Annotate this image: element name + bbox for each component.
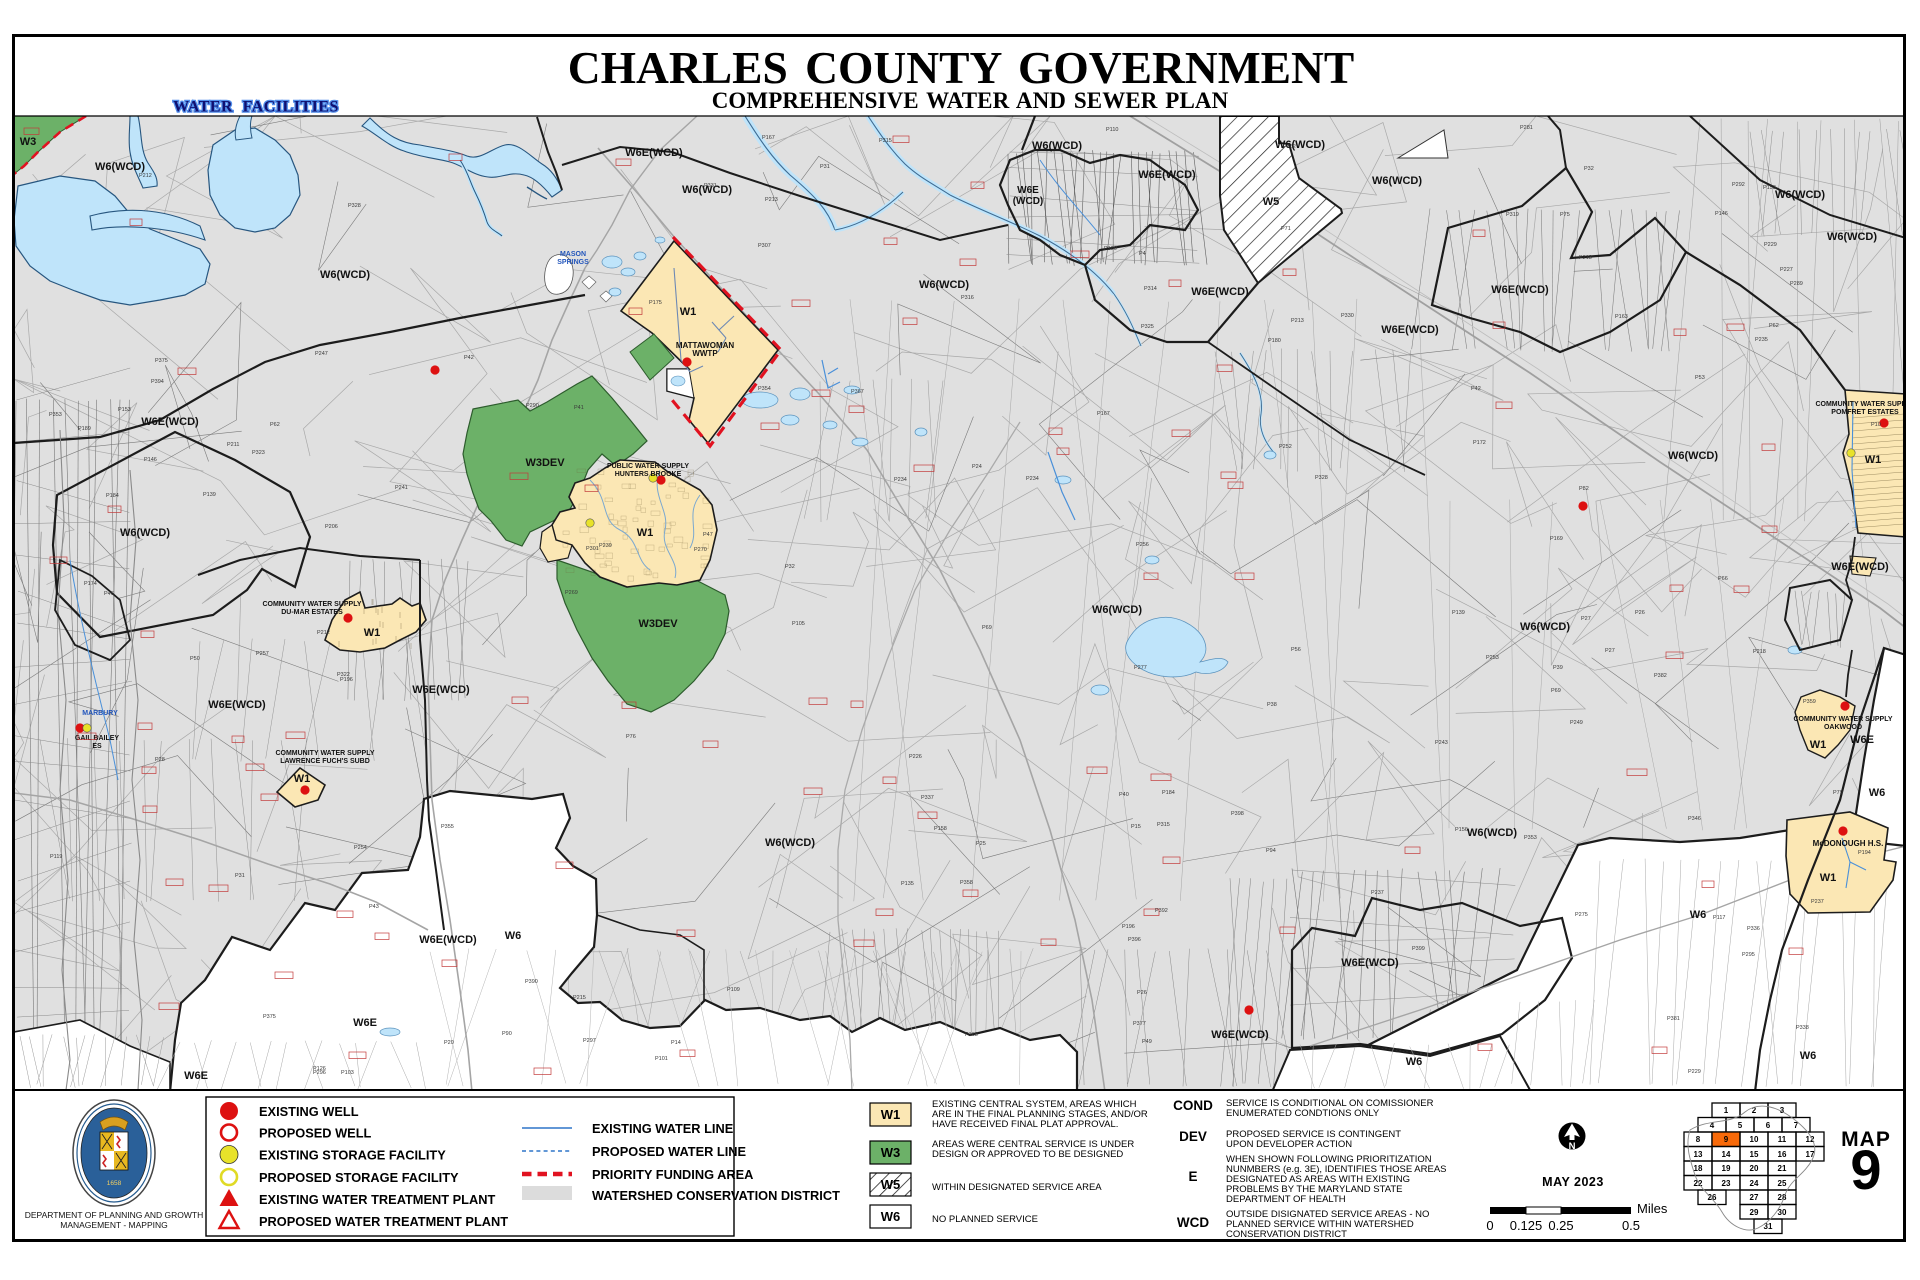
svg-text:10: 10 [1750, 1135, 1759, 1144]
svg-text:CHARLES COUNTY GOVERNMENT: CHARLES COUNTY GOVERNMENT [568, 42, 1354, 93]
svg-text:P211: P211 [227, 442, 239, 448]
svg-text:P31: P31 [820, 164, 830, 170]
svg-text:P180: P180 [1104, 246, 1117, 252]
svg-text:DEPARTMENT OF HEALTH: DEPARTMENT OF HEALTH [1226, 1194, 1346, 1205]
svg-text:P196: P196 [340, 677, 353, 683]
svg-text:P156: P156 [1455, 827, 1468, 833]
svg-text:P153: P153 [1763, 185, 1776, 191]
svg-text:WATERSHED CONSERVATION DISTRIC: WATERSHED CONSERVATION DISTRICT [592, 1188, 840, 1203]
svg-text:24: 24 [1750, 1179, 1759, 1188]
svg-text:P49: P49 [1142, 1039, 1152, 1045]
svg-text:15: 15 [1750, 1150, 1759, 1159]
svg-text:21: 21 [1778, 1164, 1787, 1173]
svg-text:W6(WCD): W6(WCD) [1032, 140, 1082, 152]
svg-text:14: 14 [1722, 1150, 1731, 1159]
svg-text:8: 8 [1696, 1135, 1701, 1144]
svg-text:P234: P234 [1026, 476, 1039, 482]
svg-text:P43: P43 [369, 904, 379, 910]
svg-text:P212: P212 [139, 173, 152, 179]
svg-text:P325: P325 [1141, 324, 1154, 330]
svg-text:P105: P105 [792, 621, 805, 627]
svg-text:W6E: W6E [1850, 734, 1874, 746]
svg-text:0.125: 0.125 [1510, 1218, 1543, 1233]
svg-text:P307: P307 [758, 243, 771, 249]
svg-text:P50: P50 [190, 656, 200, 662]
svg-text:P353: P353 [49, 412, 62, 418]
svg-text:P253: P253 [1486, 655, 1499, 661]
svg-text:P27: P27 [1581, 616, 1591, 622]
svg-text:COMMUNITY WATER SUPPLY: COMMUNITY WATER SUPPLY [1815, 401, 1914, 408]
svg-text:W6E(WCD): W6E(WCD) [208, 699, 266, 711]
svg-text:P184: P184 [106, 493, 119, 499]
svg-text:P69: P69 [982, 625, 992, 631]
svg-text:P109: P109 [727, 987, 740, 993]
svg-text:W6(WCD): W6(WCD) [1775, 189, 1825, 201]
svg-text:P139: P139 [203, 492, 216, 498]
svg-text:P292: P292 [1732, 182, 1745, 188]
svg-text:P330: P330 [1341, 313, 1354, 319]
svg-text:W6(WCD): W6(WCD) [1520, 621, 1570, 633]
svg-text:W6E(WCD): W6E(WCD) [1191, 286, 1249, 298]
svg-text:P331: P331 [704, 183, 717, 189]
svg-text:P382: P382 [1654, 673, 1667, 679]
svg-text:P62: P62 [1769, 323, 1779, 329]
svg-text:W6: W6 [881, 1209, 901, 1224]
svg-text:P94: P94 [1266, 848, 1276, 854]
svg-text:P254: P254 [354, 845, 367, 851]
svg-text:P75: P75 [1560, 212, 1570, 218]
svg-text:W6(WCD): W6(WCD) [320, 269, 370, 281]
svg-text:W6(WCD): W6(WCD) [765, 837, 815, 849]
svg-text:MASON: MASON [560, 251, 586, 258]
svg-text:P256: P256 [1136, 542, 1149, 548]
svg-text:25: 25 [1778, 1179, 1787, 1188]
svg-text:DU-MAR ESTATES: DU-MAR ESTATES [281, 609, 343, 616]
svg-text:P346: P346 [1688, 816, 1701, 822]
svg-text:P31: P31 [235, 873, 245, 879]
svg-text:P336: P336 [1747, 926, 1760, 932]
svg-text:P237: P237 [1811, 899, 1824, 905]
svg-text:W6: W6 [1869, 787, 1886, 799]
svg-text:P26: P26 [1137, 990, 1147, 996]
svg-text:NO PLANNED SERVICE: NO PLANNED SERVICE [932, 1214, 1038, 1225]
svg-text:P281: P281 [1520, 125, 1533, 131]
svg-text:P227: P227 [1780, 267, 1793, 273]
svg-text:P316: P316 [961, 295, 974, 301]
svg-text:SPRINGS: SPRINGS [557, 259, 589, 266]
svg-text:P328: P328 [1315, 475, 1328, 481]
svg-text:W6E: W6E [353, 1017, 377, 1029]
svg-text:P66: P66 [1718, 576, 1728, 582]
svg-text:P101: P101 [655, 1056, 668, 1062]
svg-text:LAWRENCE FUCH'S SUBD: LAWRENCE FUCH'S SUBD [280, 758, 370, 765]
svg-text:6: 6 [1766, 1121, 1771, 1130]
svg-text:P62: P62 [270, 422, 280, 428]
svg-text:EXISTING WELL: EXISTING WELL [259, 1104, 359, 1119]
svg-text:P146: P146 [1715, 211, 1728, 217]
svg-text:11: 11 [1778, 1135, 1787, 1144]
svg-text:P252: P252 [1279, 444, 1292, 450]
svg-text:P139: P139 [1452, 610, 1465, 616]
svg-text:W3: W3 [881, 1145, 901, 1160]
svg-text:W6: W6 [1406, 1056, 1423, 1068]
svg-text:P314: P314 [1144, 286, 1157, 292]
svg-text:P69: P69 [1551, 688, 1561, 694]
svg-text:P15: P15 [1131, 824, 1141, 830]
svg-text:P234: P234 [894, 477, 907, 483]
svg-text:GAIL BAILEY: GAIL BAILEY [75, 735, 120, 742]
svg-text:PUBLIC WATER SUPPLY: PUBLIC WATER SUPPLY [607, 463, 689, 470]
svg-text:W1: W1 [881, 1107, 901, 1122]
svg-text:P117: P117 [1713, 915, 1725, 921]
svg-text:P237: P237 [1371, 890, 1384, 896]
svg-text:W6(WCD): W6(WCD) [1092, 604, 1142, 616]
svg-text:WWTP: WWTP [692, 349, 718, 358]
svg-text:WATER FACILITIES: WATER FACILITIES [173, 99, 339, 116]
svg-text:P290: P290 [526, 403, 539, 409]
svg-text:P229: P229 [1764, 242, 1777, 248]
svg-text:1: 1 [1724, 1106, 1729, 1115]
svg-text:P297: P297 [583, 1038, 596, 1044]
svg-text:P119: P119 [50, 854, 62, 860]
svg-text:P153: P153 [118, 407, 131, 413]
svg-text:P269: P269 [565, 590, 578, 596]
svg-text:P42: P42 [464, 355, 474, 361]
svg-text:P375: P375 [263, 1014, 276, 1020]
svg-text:ENUMERATED CONDTIONS ONLY: ENUMERATED CONDTIONS ONLY [1226, 1108, 1380, 1119]
svg-text:PRIORITY FUNDING AREA: PRIORITY FUNDING AREA [592, 1167, 753, 1182]
svg-text:P4: P4 [1139, 251, 1146, 257]
svg-text:29: 29 [1750, 1208, 1759, 1217]
svg-text:P319: P319 [1506, 212, 1519, 218]
svg-text:P38: P38 [1267, 702, 1277, 708]
svg-text:W6E(WCD): W6E(WCD) [1491, 284, 1549, 296]
svg-text:P270: P270 [694, 547, 707, 553]
svg-text:COMPREHENSIVE WATER AND SEW: COMPREHENSIVE WATER AND SEWER PLAN [712, 88, 1229, 113]
svg-text:P189: P189 [78, 426, 91, 432]
svg-text:W6: W6 [505, 930, 522, 942]
svg-text:P243: P243 [1435, 740, 1448, 746]
svg-text:W6(WCD): W6(WCD) [1827, 231, 1877, 243]
svg-text:W6E: W6E [184, 1070, 208, 1082]
svg-text:19: 19 [1722, 1164, 1731, 1173]
svg-text:PROPOSED WATER LINE: PROPOSED WATER LINE [592, 1144, 747, 1159]
svg-text:W5: W5 [881, 1177, 901, 1192]
svg-text:W3DEV: W3DEV [525, 457, 565, 469]
svg-text:W6E(WCD): W6E(WCD) [1341, 957, 1399, 969]
svg-text:P315: P315 [1157, 822, 1170, 828]
svg-text:P213: P213 [1291, 318, 1304, 324]
svg-text:P355: P355 [441, 824, 454, 830]
svg-text:W1: W1 [1810, 739, 1827, 751]
svg-text:CONSERVATION DISTRICT: CONSERVATION DISTRICT [1226, 1229, 1347, 1240]
svg-text:P392: P392 [1155, 908, 1168, 914]
svg-text:P229: P229 [1688, 1069, 1701, 1075]
svg-text:P398: P398 [1231, 811, 1244, 817]
svg-text:HUNTERS BROOKE: HUNTERS BROOKE [615, 471, 682, 478]
svg-text:23: 23 [1722, 1179, 1731, 1188]
svg-text:W3DEV: W3DEV [638, 618, 678, 630]
svg-text:P301: P301 [586, 546, 599, 552]
svg-text:P174: P174 [84, 581, 97, 587]
svg-text:W1: W1 [364, 627, 381, 639]
svg-text:P25: P25 [976, 841, 986, 847]
svg-text:W1: W1 [294, 773, 311, 785]
svg-text:P377: P377 [1133, 1021, 1146, 1027]
svg-text:P359: P359 [1803, 699, 1816, 705]
svg-text:OAKWOOD: OAKWOOD [1824, 724, 1862, 731]
svg-text:N: N [1569, 1141, 1576, 1152]
svg-text:P396: P396 [1128, 937, 1141, 943]
svg-text:13: 13 [1694, 1150, 1703, 1159]
svg-text:P249: P249 [1570, 720, 1583, 726]
svg-text:COMMUNITY WATER SUPPLY: COMMUNITY WATER SUPPLY [275, 750, 374, 757]
svg-text:PROPOSED WATER TREATMENT PLANT: PROPOSED WATER TREATMENT PLANT [259, 1214, 508, 1229]
svg-text:P103: P103 [341, 1070, 354, 1076]
svg-text:P353: P353 [1524, 835, 1537, 841]
svg-text:P241: P241 [395, 485, 408, 491]
svg-text:W6E(WCD): W6E(WCD) [1381, 324, 1439, 336]
svg-text:P126: P126 [313, 1066, 326, 1072]
svg-text:W6E(WCD): W6E(WCD) [1138, 169, 1196, 181]
svg-text:P362: P362 [1283, 144, 1296, 150]
svg-text:5: 5 [1738, 1121, 1743, 1130]
svg-text:P53: P53 [1695, 375, 1705, 381]
svg-text:P32: P32 [785, 564, 795, 570]
svg-text:27: 27 [1750, 1193, 1759, 1202]
svg-text:W6: W6 [1800, 1050, 1817, 1062]
svg-text:COND: COND [1173, 1098, 1213, 1113]
svg-text:P42: P42 [1471, 386, 1481, 392]
svg-text:McDONOUGH H.S.: McDONOUGH H.S. [1813, 839, 1884, 848]
svg-text:W3: W3 [20, 136, 37, 148]
svg-text:18: 18 [1694, 1164, 1703, 1173]
svg-text:MARBURY: MARBURY [82, 710, 118, 717]
svg-text:WCD: WCD [1177, 1215, 1209, 1230]
svg-text:P277: P277 [1134, 665, 1147, 671]
svg-text:P24: P24 [972, 464, 982, 470]
svg-text:P135: P135 [901, 881, 914, 887]
svg-text:DEV: DEV [1179, 1129, 1207, 1144]
svg-text:P28: P28 [155, 757, 165, 763]
svg-text:P172: P172 [1473, 440, 1486, 446]
svg-text:P257: P257 [256, 651, 269, 657]
svg-text:E: E [1188, 1169, 1197, 1184]
svg-text:P168: P168 [965, 1032, 978, 1038]
svg-text:P175: P175 [649, 300, 662, 306]
svg-text:UPON DEVELOPER ACTION: UPON DEVELOPER ACTION [1226, 1139, 1352, 1150]
svg-text:P47: P47 [703, 532, 713, 538]
svg-text:W6E(WCD): W6E(WCD) [1831, 561, 1889, 573]
svg-text:P247: P247 [315, 351, 328, 357]
svg-text:P196: P196 [1122, 924, 1135, 930]
svg-text:WITHIN DESIGNATED SERVICE AREA: WITHIN DESIGNATED SERVICE AREA [932, 1182, 1102, 1193]
svg-text:P46: P46 [104, 591, 114, 597]
svg-text:P184: P184 [1162, 790, 1175, 796]
svg-text:W1: W1 [680, 306, 697, 318]
svg-text:PROPOSED WELL: PROPOSED WELL [259, 1126, 372, 1141]
svg-text:W6(WCD): W6(WCD) [95, 161, 145, 173]
svg-text:MAY 2023: MAY 2023 [1542, 1175, 1604, 1189]
svg-text:W1: W1 [1820, 872, 1837, 884]
svg-text:P358: P358 [960, 880, 973, 886]
svg-text:P328: P328 [348, 203, 361, 209]
svg-text:W6E(WCD): W6E(WCD) [1211, 1029, 1269, 1041]
svg-text:POMFRET ESTATES: POMFRET ESTATES [1831, 409, 1899, 416]
svg-text:P367: P367 [851, 389, 864, 395]
svg-text:P163: P163 [1615, 314, 1628, 320]
svg-text:P79: P79 [1833, 790, 1843, 796]
svg-text:P218: P218 [1753, 649, 1766, 655]
svg-text:16: 16 [1778, 1150, 1787, 1159]
svg-text:W6E(WCD): W6E(WCD) [412, 684, 470, 696]
svg-text:W6E(WCD): W6E(WCD) [419, 934, 477, 946]
svg-text:W6E: W6E [1017, 185, 1039, 196]
svg-text:P14: P14 [671, 1040, 681, 1046]
svg-text:20: 20 [1750, 1164, 1759, 1173]
svg-text:P337: P337 [921, 795, 934, 801]
svg-text:P32: P32 [1584, 166, 1594, 172]
svg-text:P82: P82 [1579, 486, 1589, 492]
svg-text:P235: P235 [1755, 337, 1768, 343]
svg-text:P10: P10 [1871, 422, 1881, 428]
svg-text:P110: P110 [1106, 127, 1118, 133]
svg-text:P76: P76 [626, 734, 636, 740]
svg-text:P158: P158 [934, 826, 947, 832]
svg-text:P206: P206 [325, 524, 338, 530]
svg-text:Miles: Miles [1637, 1201, 1668, 1216]
svg-text:P213: P213 [765, 197, 778, 203]
svg-text:P323: P323 [252, 450, 265, 456]
svg-text:W6(WCD): W6(WCD) [1668, 450, 1718, 462]
svg-text:P194: P194 [1858, 850, 1871, 856]
svg-text:P213: P213 [1579, 255, 1592, 261]
svg-text:P169: P169 [1550, 536, 1563, 542]
svg-text:P146: P146 [144, 457, 157, 463]
svg-text:P215: P215 [573, 995, 586, 1001]
svg-text:P212: P212 [317, 630, 330, 636]
svg-text:0: 0 [1486, 1218, 1493, 1233]
svg-text:DEPARTMENT OF PLANNING AND GRO: DEPARTMENT OF PLANNING AND GROWTH [25, 1210, 204, 1220]
svg-text:9: 9 [1724, 1135, 1729, 1144]
svg-text:P167: P167 [1097, 411, 1110, 417]
svg-text:P375: P375 [155, 358, 168, 364]
svg-text:W1: W1 [1865, 454, 1882, 466]
svg-text:P354: P354 [758, 386, 771, 392]
svg-text:1658: 1658 [107, 1180, 122, 1187]
svg-text:9: 9 [1850, 1138, 1881, 1201]
svg-text:(WCD): (WCD) [1013, 196, 1044, 207]
svg-text:P27: P27 [1605, 648, 1615, 654]
svg-text:HAVE RECEIVED FINAL PLAT APPRO: HAVE RECEIVED FINAL PLAT APPROVAL. [932, 1119, 1118, 1130]
svg-text:P289: P289 [1790, 281, 1803, 287]
svg-text:COMMUNITY WATER SUPPLY: COMMUNITY WATER SUPPLY [262, 601, 361, 608]
svg-text:0.25: 0.25 [1548, 1218, 1573, 1233]
svg-text:W6E(WCD): W6E(WCD) [625, 147, 683, 159]
svg-text:P390: P390 [525, 979, 538, 985]
svg-text:P56: P56 [1291, 647, 1301, 653]
svg-text:EXISTING STORAGE FACILITY: EXISTING STORAGE FACILITY [259, 1148, 446, 1163]
svg-text:P39: P39 [1553, 665, 1563, 671]
svg-text:W6(WCD): W6(WCD) [1372, 175, 1422, 187]
svg-text:P226: P226 [909, 754, 922, 760]
svg-text:COMMUNITY WATER SUPPLY: COMMUNITY WATER SUPPLY [1793, 716, 1892, 723]
svg-text:P239: P239 [599, 543, 612, 549]
svg-text:P315: P315 [879, 138, 892, 144]
svg-text:EXISTING WATER TREATMENT PLANT: EXISTING WATER TREATMENT PLANT [259, 1192, 495, 1207]
svg-text:W1: W1 [637, 527, 654, 539]
svg-text:P275: P275 [1575, 912, 1588, 918]
svg-text:P71: P71 [1281, 226, 1291, 232]
svg-text:W5: W5 [1263, 196, 1280, 208]
svg-text:ES: ES [92, 743, 102, 750]
svg-text:W6(WCD): W6(WCD) [1467, 827, 1517, 839]
svg-text:P180: P180 [1268, 338, 1281, 344]
svg-text:W6E(WCD): W6E(WCD) [141, 416, 199, 428]
svg-text:26: 26 [1708, 1193, 1717, 1202]
svg-text:P20: P20 [444, 1040, 454, 1046]
svg-text:W6(WCD): W6(WCD) [120, 527, 170, 539]
svg-text:PROPOSED STORAGE FACILITY: PROPOSED STORAGE FACILITY [259, 1170, 459, 1185]
svg-text:W6: W6 [1690, 909, 1707, 921]
svg-text:MANAGEMENT - MAPPING: MANAGEMENT - MAPPING [60, 1220, 168, 1230]
svg-text:P295: P295 [1742, 952, 1755, 958]
svg-text:0.5: 0.5 [1622, 1218, 1640, 1233]
svg-text:P338: P338 [1796, 1025, 1809, 1031]
svg-text:W6(WCD): W6(WCD) [919, 279, 969, 291]
svg-text:DESIGN OR APPROVED TO BE DESIG: DESIGN OR APPROVED TO BE DESIGNED [932, 1149, 1123, 1160]
svg-text:P26: P26 [1635, 610, 1645, 616]
svg-text:P90: P90 [502, 1031, 512, 1037]
svg-text:P394: P394 [151, 379, 164, 385]
svg-text:P381: P381 [1667, 1016, 1680, 1022]
svg-text:P40: P40 [1119, 792, 1129, 798]
svg-text:EXISTING WATER LINE: EXISTING WATER LINE [592, 1121, 734, 1136]
svg-text:P167: P167 [762, 135, 775, 141]
svg-text:P399: P399 [1412, 946, 1425, 952]
svg-text:P41: P41 [574, 405, 584, 411]
